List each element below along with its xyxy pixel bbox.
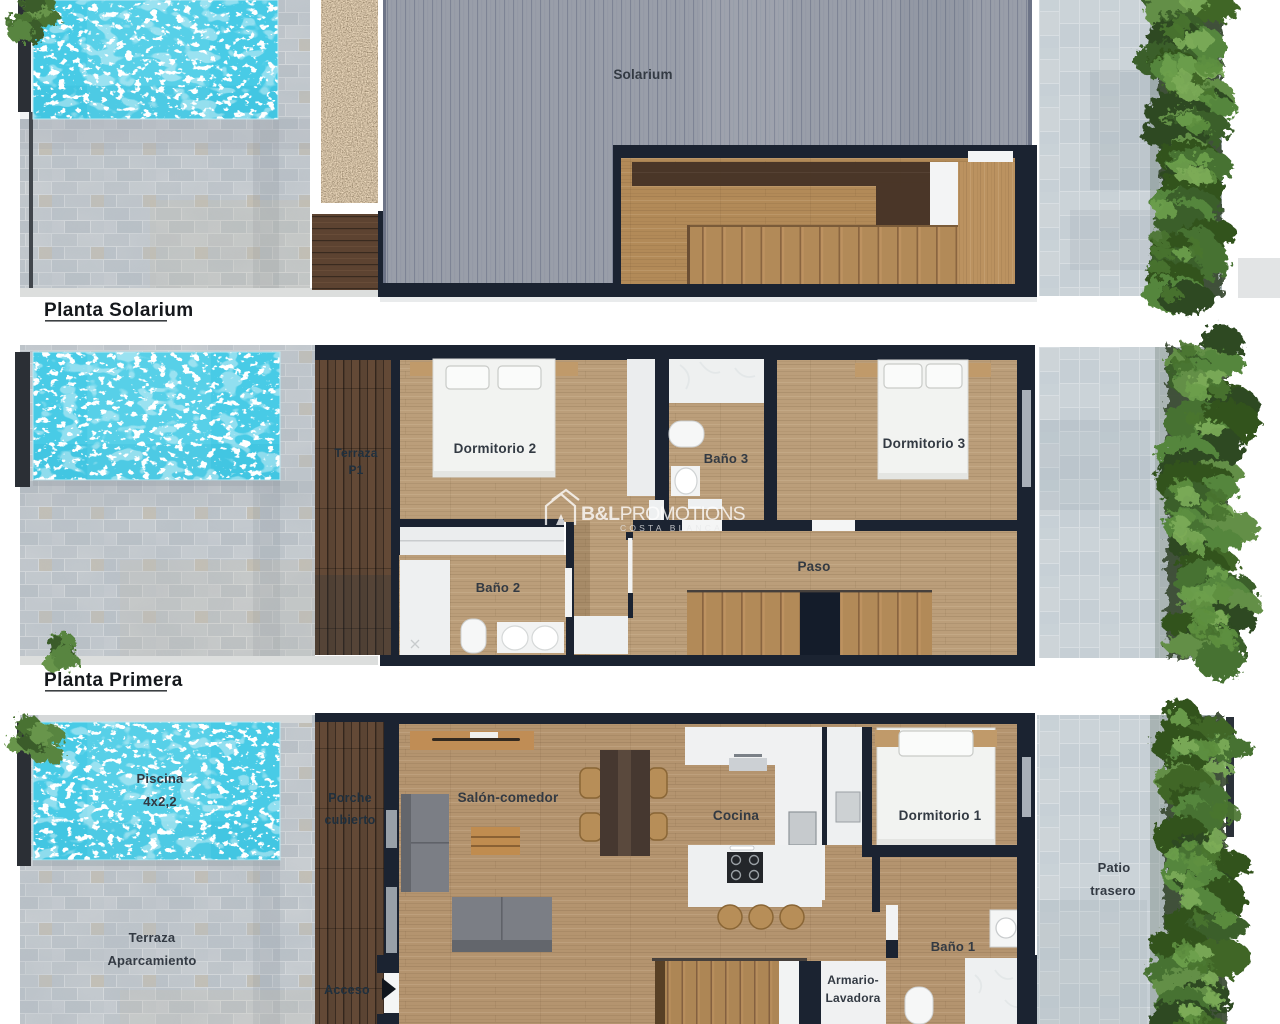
- svg-text:Armario-: Armario-: [827, 973, 879, 987]
- svg-text:trasero: trasero: [1090, 883, 1135, 898]
- svg-text:Piscina: Piscina: [137, 771, 184, 786]
- svg-text:Terraza: Terraza: [129, 930, 176, 945]
- svg-text:Dormitorio 1: Dormitorio 1: [899, 808, 982, 823]
- svg-text:Baño 2: Baño 2: [476, 580, 521, 595]
- svg-text:4x2,2: 4x2,2: [143, 794, 177, 809]
- svg-text:Paso: Paso: [797, 559, 830, 574]
- svg-text:COSTA BLANCA: COSTA BLANCA: [620, 523, 723, 533]
- svg-text:Aparcamiento: Aparcamiento: [107, 953, 196, 968]
- svg-text:Patio: Patio: [1098, 860, 1131, 875]
- svg-text:Baño 3: Baño 3: [704, 451, 749, 466]
- svg-text:Dormitorio 3: Dormitorio 3: [883, 436, 966, 451]
- svg-text:Solarium: Solarium: [613, 67, 672, 82]
- svg-text:Dormitorio 2: Dormitorio 2: [454, 441, 537, 456]
- svg-text:P1: P1: [348, 463, 363, 477]
- svg-text:B&LPROMOTIONS: B&LPROMOTIONS: [581, 503, 746, 525]
- svg-text:Planta Primera: Planta Primera: [44, 670, 183, 691]
- svg-text:Acceso: Acceso: [324, 983, 370, 997]
- svg-text:Baño 1: Baño 1: [931, 939, 976, 954]
- svg-text:cubierto: cubierto: [325, 813, 376, 827]
- svg-text:Planta Solarium: Planta Solarium: [44, 300, 194, 321]
- svg-text:Salón-comedor: Salón-comedor: [458, 790, 559, 805]
- svg-text:Cocina: Cocina: [713, 808, 760, 823]
- svg-text:Terraza: Terraza: [334, 446, 377, 460]
- svg-text:Lavadora: Lavadora: [826, 991, 881, 1005]
- svg-text:Porche: Porche: [328, 791, 372, 805]
